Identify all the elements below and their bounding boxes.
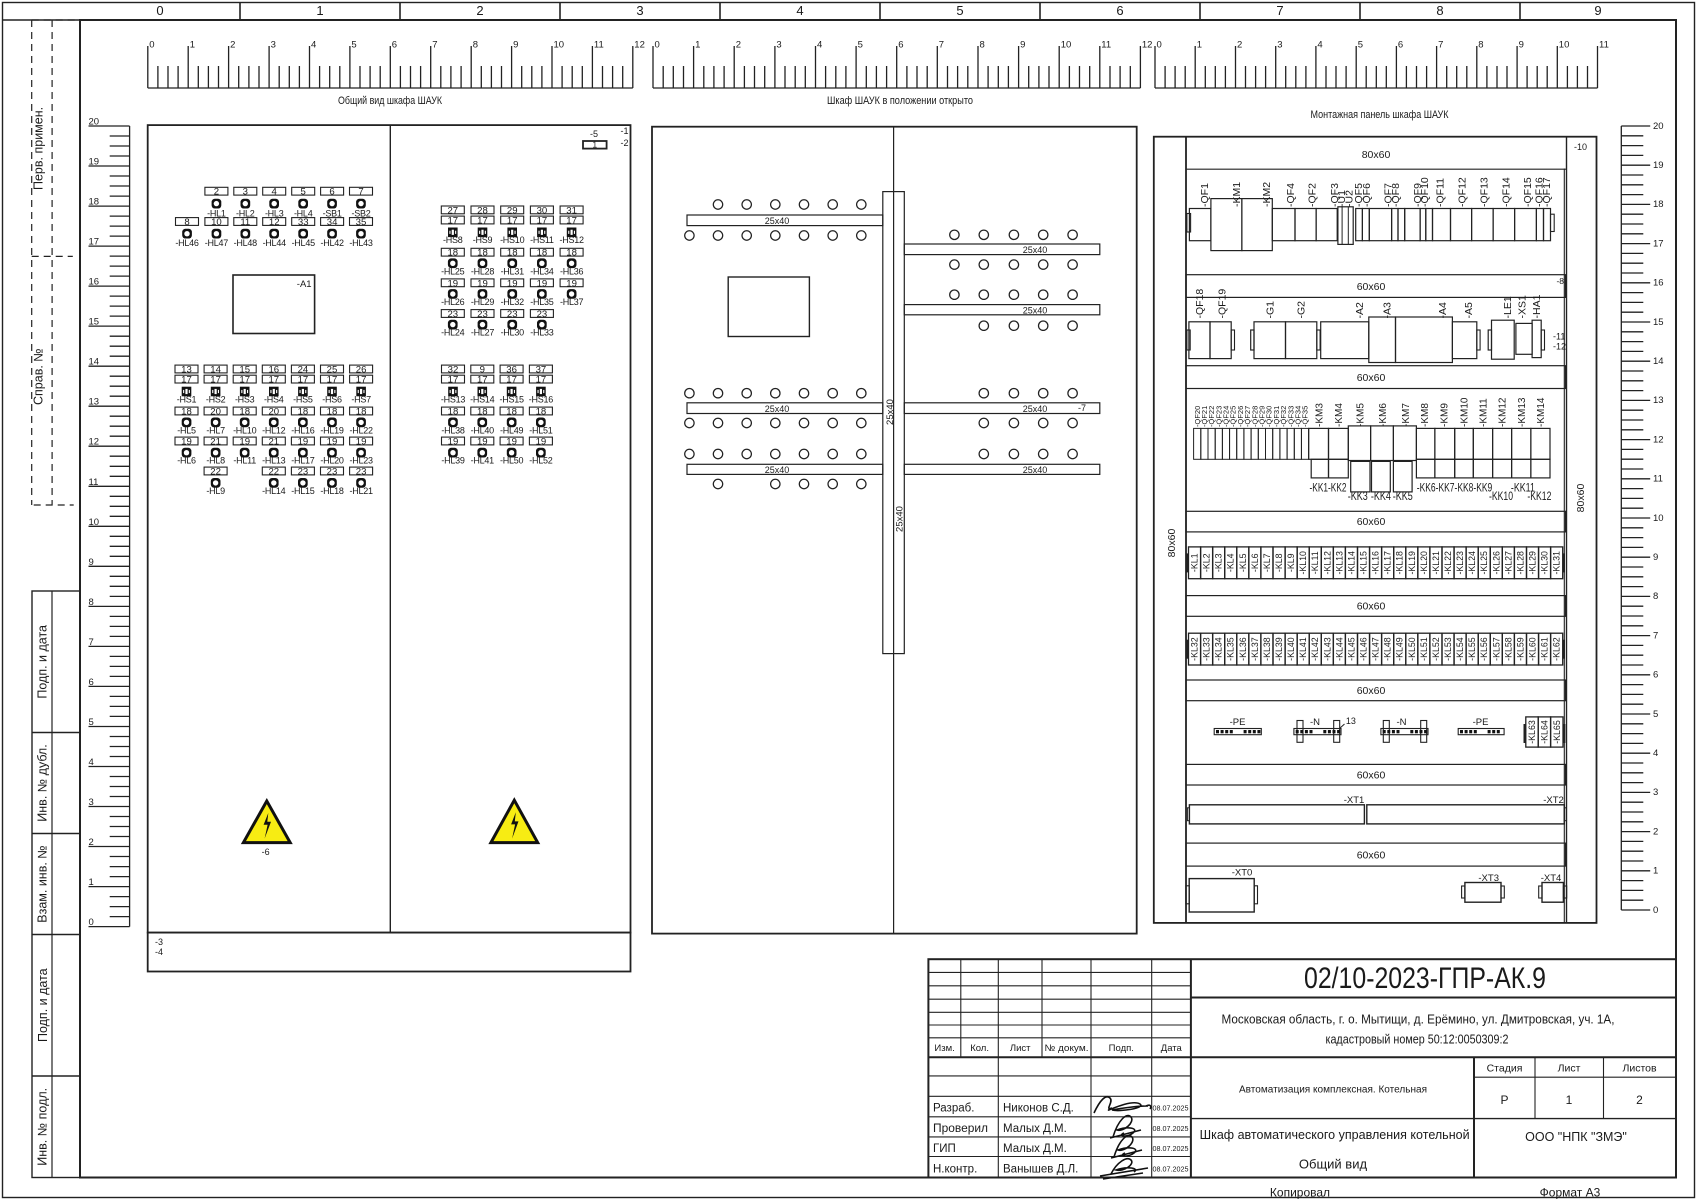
svg-text:Изм.: Изм. <box>934 1043 954 1054</box>
svg-text:-1: -1 <box>620 126 628 136</box>
svg-text:-KL34: -KL34 <box>1214 637 1224 661</box>
svg-text:4: 4 <box>796 3 803 18</box>
svg-text:-KL6: -KL6 <box>1250 553 1260 572</box>
svg-text:Взам. инв. №: Взам. инв. № <box>36 845 50 922</box>
svg-text:ООО "НПК "ЗМЭ": ООО "НПК "ЗМЭ" <box>1525 1130 1627 1144</box>
svg-text:-HS1: -HS1 <box>177 395 197 405</box>
svg-text:-KM9: -KM9 <box>1440 403 1451 427</box>
svg-text:21: 21 <box>268 437 279 448</box>
svg-text:7: 7 <box>1276 3 1283 18</box>
svg-text:-HL32: -HL32 <box>501 297 525 307</box>
svg-text:20: 20 <box>210 407 221 418</box>
svg-text:-QF19: -QF19 <box>1216 289 1228 319</box>
svg-text:-HL44: -HL44 <box>263 238 287 248</box>
svg-text:6: 6 <box>329 187 334 198</box>
svg-text:Лист: Лист <box>1010 1043 1031 1054</box>
svg-text:18: 18 <box>181 407 192 418</box>
svg-text:19: 19 <box>537 278 548 289</box>
svg-text:-KL8: -KL8 <box>1274 553 1284 572</box>
svg-text:-HL30: -HL30 <box>501 328 525 338</box>
svg-text:16: 16 <box>1653 278 1664 289</box>
svg-text:11: 11 <box>1653 474 1663 485</box>
svg-text:-KL62: -KL62 <box>1552 637 1562 661</box>
svg-text:-HS2: -HS2 <box>206 395 226 405</box>
svg-text:-HS16: -HS16 <box>529 395 554 405</box>
svg-text:19: 19 <box>298 437 309 448</box>
svg-text:0: 0 <box>149 40 154 51</box>
svg-text:Кол.: Кол. <box>970 1043 989 1054</box>
svg-text:Стадия: Стадия <box>1487 1063 1523 1075</box>
svg-text:6: 6 <box>1398 40 1403 51</box>
svg-text:-KL28: -KL28 <box>1515 551 1525 575</box>
svg-text:-HL34: -HL34 <box>530 266 554 276</box>
svg-text:-KL3: -KL3 <box>1214 553 1224 572</box>
svg-text:-KL18: -KL18 <box>1395 551 1405 575</box>
svg-text:-KL20: -KL20 <box>1419 551 1429 575</box>
svg-text:-KL19: -KL19 <box>1407 551 1417 575</box>
svg-text:17: 17 <box>181 375 192 386</box>
svg-text:60x60: 60x60 <box>1357 372 1386 384</box>
svg-text:20: 20 <box>268 407 279 418</box>
svg-text:-KL46: -KL46 <box>1359 637 1369 661</box>
svg-text:8: 8 <box>980 40 985 51</box>
svg-text:18: 18 <box>506 407 517 418</box>
svg-text:Подп.: Подп. <box>1109 1043 1134 1054</box>
svg-text:-A3: -A3 <box>1382 302 1394 319</box>
svg-text:7: 7 <box>1653 630 1658 641</box>
svg-text:-QF12: -QF12 <box>1456 177 1468 207</box>
svg-text:-KL57: -KL57 <box>1491 637 1501 661</box>
svg-text:-HL22: -HL22 <box>349 426 373 436</box>
svg-text:-QF35: -QF35 <box>1301 406 1310 427</box>
svg-text:-XS1: -XS1 <box>1517 295 1529 319</box>
svg-text:-KL13: -KL13 <box>1334 551 1344 575</box>
svg-text:23: 23 <box>507 309 518 320</box>
svg-text:12: 12 <box>1653 434 1664 445</box>
svg-text:4: 4 <box>1653 748 1658 759</box>
svg-text:-KM4: -KM4 <box>1334 403 1345 427</box>
svg-text:19: 19 <box>356 437 367 448</box>
svg-text:-HS6: -HS6 <box>322 395 342 405</box>
svg-text:3: 3 <box>776 40 781 51</box>
svg-text:4: 4 <box>311 40 316 51</box>
svg-text:-KL49: -KL49 <box>1395 637 1405 661</box>
svg-text:-KL7: -KL7 <box>1262 553 1272 572</box>
svg-text:6: 6 <box>1116 3 1123 18</box>
svg-text:1: 1 <box>1566 1093 1573 1107</box>
svg-text:23: 23 <box>537 309 548 320</box>
svg-text:19: 19 <box>327 437 338 448</box>
svg-text:-KL33: -KL33 <box>1202 637 1212 661</box>
svg-text:ГИП: ГИП <box>933 1143 956 1155</box>
svg-text:19: 19 <box>1653 160 1664 171</box>
svg-text:11: 11 <box>240 217 250 228</box>
svg-text:14: 14 <box>1653 356 1664 367</box>
svg-text:-KL1: -KL1 <box>1190 553 1200 572</box>
svg-text:-KK12: -KK12 <box>1527 491 1551 503</box>
svg-text:19: 19 <box>447 278 458 289</box>
svg-text:-HL27: -HL27 <box>471 328 495 338</box>
svg-text:17: 17 <box>1653 238 1664 249</box>
svg-text:5: 5 <box>1358 40 1363 51</box>
svg-text:-KK10: -KK10 <box>1489 491 1513 503</box>
svg-text:-KL21: -KL21 <box>1431 551 1441 575</box>
svg-text:2: 2 <box>736 40 741 51</box>
svg-text:-KM12: -KM12 <box>1498 397 1509 427</box>
svg-text:-KL29: -KL29 <box>1528 551 1538 575</box>
svg-text:10: 10 <box>1559 40 1570 51</box>
svg-text:-HL39: -HL39 <box>441 455 465 465</box>
svg-text:Никонов С.Д.: Никонов С.Д. <box>1003 1103 1074 1115</box>
svg-text:-PE: -PE <box>1473 717 1489 728</box>
svg-text:11: 11 <box>1599 40 1609 51</box>
svg-text:-KM7: -KM7 <box>1401 403 1412 427</box>
svg-text:-5: -5 <box>590 129 598 139</box>
svg-text:2: 2 <box>230 40 235 51</box>
svg-text:-HL21: -HL21 <box>349 486 373 496</box>
svg-text:25x40: 25x40 <box>765 404 790 414</box>
svg-text:Формат А3: Формат А3 <box>1540 1186 1601 1200</box>
svg-text:Дата: Дата <box>1161 1043 1183 1054</box>
svg-text:-HL11: -HL11 <box>233 455 256 465</box>
svg-text:33: 33 <box>298 217 309 228</box>
svg-text:Инв. № подл.: Инв. № подл. <box>36 1088 50 1166</box>
svg-text:19: 19 <box>477 278 488 289</box>
svg-text:2: 2 <box>214 187 219 198</box>
svg-text:-A4: -A4 <box>1437 302 1449 319</box>
svg-text:3: 3 <box>636 3 643 18</box>
svg-text:Справ. №: Справ. № <box>32 348 46 405</box>
svg-text:20: 20 <box>1653 121 1664 132</box>
svg-text:19: 19 <box>181 437 192 448</box>
svg-text:-KL26: -KL26 <box>1491 551 1501 575</box>
svg-text:10: 10 <box>1653 513 1664 524</box>
svg-text:17: 17 <box>447 216 458 227</box>
svg-text:-HL42: -HL42 <box>320 238 344 248</box>
svg-text:-QF10: -QF10 <box>1419 177 1431 207</box>
svg-text:Малых Д.М.: Малых Д.М. <box>1003 1143 1067 1155</box>
svg-text:-KL2: -KL2 <box>1202 553 1212 572</box>
svg-text:12: 12 <box>269 217 280 228</box>
svg-text:-G2: -G2 <box>1295 301 1307 319</box>
svg-text:-KL56: -KL56 <box>1479 637 1489 661</box>
svg-text:-KL61: -KL61 <box>1540 637 1550 661</box>
svg-text:-KL27: -KL27 <box>1503 551 1513 575</box>
svg-text:23: 23 <box>298 467 309 478</box>
svg-text:-KL45: -KL45 <box>1346 637 1356 661</box>
svg-text:-HL20: -HL20 <box>320 455 344 465</box>
svg-text:Общий вид шкафа ШАУК: Общий вид шкафа ШАУК <box>338 95 442 107</box>
svg-text:-HL33: -HL33 <box>530 328 554 338</box>
svg-text:17: 17 <box>210 375 221 386</box>
svg-text:-KL14: -KL14 <box>1346 551 1356 575</box>
svg-text:21: 21 <box>210 437 221 448</box>
svg-text:25x40: 25x40 <box>1023 305 1048 315</box>
svg-text:-KL25: -KL25 <box>1479 551 1489 575</box>
svg-text:23: 23 <box>447 309 458 320</box>
svg-text:7: 7 <box>1438 40 1443 51</box>
svg-text:-HA1: -HA1 <box>1531 294 1543 318</box>
svg-text:Подп. и дата: Подп. и дата <box>36 625 50 699</box>
svg-text:-QF8: -QF8 <box>1390 183 1402 207</box>
svg-text:17: 17 <box>507 216 518 227</box>
svg-text:18: 18 <box>536 407 547 418</box>
svg-text:-HL37: -HL37 <box>560 297 584 307</box>
svg-text:-HL43: -HL43 <box>349 238 373 248</box>
svg-text:25x40: 25x40 <box>885 399 896 425</box>
svg-text:-KK4: -KK4 <box>1371 491 1391 503</box>
svg-text:-XT3: -XT3 <box>1478 873 1499 884</box>
svg-text:-KL36: -KL36 <box>1238 637 1248 661</box>
svg-text:Проверил: Проверил <box>933 1123 988 1135</box>
svg-text:2: 2 <box>1237 40 1242 51</box>
svg-text:Шкаф автоматического управлени: Шкаф автоматического управления котельно… <box>1200 1127 1470 1142</box>
svg-text:-KM11: -KM11 <box>1478 398 1489 427</box>
svg-text:Лист: Лист <box>1558 1063 1581 1075</box>
svg-text:-3: -3 <box>155 937 163 947</box>
svg-text:-XT1: -XT1 <box>1344 795 1365 806</box>
svg-text:10: 10 <box>1061 40 1072 51</box>
svg-text:-KM6: -KM6 <box>1378 403 1389 427</box>
svg-text:-KL60: -KL60 <box>1528 637 1538 661</box>
svg-text:-N: -N <box>1396 717 1406 728</box>
svg-text:-HL15: -HL15 <box>291 486 315 496</box>
svg-text:-KL47: -KL47 <box>1371 637 1381 661</box>
svg-text:19: 19 <box>239 437 250 448</box>
svg-text:-KL32: -KL32 <box>1190 637 1200 661</box>
svg-text:-11: -11 <box>1553 332 1565 342</box>
svg-text:4: 4 <box>272 187 278 198</box>
svg-text:-KL17: -KL17 <box>1383 551 1393 575</box>
svg-text:-HL29: -HL29 <box>471 297 495 307</box>
svg-text:-HL49: -HL49 <box>500 426 524 436</box>
svg-text:-QF2: -QF2 <box>1307 183 1319 207</box>
svg-text:13: 13 <box>1653 395 1664 406</box>
svg-text:-KL11: -KL11 <box>1310 551 1320 574</box>
svg-text:13: 13 <box>1346 716 1356 726</box>
svg-text:17: 17 <box>239 375 250 386</box>
svg-text:-KL37: -KL37 <box>1250 637 1260 661</box>
svg-text:-10: -10 <box>1574 142 1587 152</box>
svg-text:-KL35: -KL35 <box>1226 637 1236 661</box>
svg-text:22: 22 <box>210 467 221 478</box>
svg-text:8: 8 <box>1653 591 1658 602</box>
svg-text:-8: -8 <box>1556 276 1564 286</box>
svg-text:Малых Д.М.: Малых Д.М. <box>1003 1123 1067 1135</box>
svg-text:60x60: 60x60 <box>1357 770 1386 782</box>
svg-text:-A2: -A2 <box>1354 302 1366 319</box>
svg-text:-KM8: -KM8 <box>1420 403 1431 427</box>
svg-text:-HL12: -HL12 <box>262 426 286 436</box>
svg-text:5: 5 <box>858 40 863 51</box>
svg-text:-HL47: -HL47 <box>205 238 229 248</box>
svg-text:-KL9: -KL9 <box>1286 553 1296 572</box>
svg-text:1: 1 <box>1653 866 1658 877</box>
svg-text:8: 8 <box>1478 40 1483 51</box>
svg-text:34: 34 <box>327 217 338 228</box>
svg-text:-KL65: -KL65 <box>1552 720 1562 744</box>
svg-text:5: 5 <box>1653 709 1658 720</box>
svg-text:-HL46: -HL46 <box>175 238 199 248</box>
svg-text:-KL53: -KL53 <box>1443 637 1453 661</box>
svg-text:-KL52: -KL52 <box>1431 637 1441 661</box>
svg-text:08.07.2025: 08.07.2025 <box>1153 1144 1189 1153</box>
svg-text:25x40: 25x40 <box>765 216 790 226</box>
svg-text:-KK5: -KK5 <box>1393 491 1413 503</box>
svg-text:-A1: -A1 <box>297 279 312 290</box>
svg-text:18: 18 <box>477 248 488 259</box>
svg-text:-KL31: -KL31 <box>1552 551 1562 575</box>
svg-text:17: 17 <box>448 375 459 386</box>
svg-text:-QF17: -QF17 <box>1541 177 1553 207</box>
svg-text:Копировал: Копировал <box>1270 1186 1330 1200</box>
svg-text:17: 17 <box>506 375 517 386</box>
svg-text:-KM10: -KM10 <box>1459 397 1470 427</box>
svg-text:19: 19 <box>566 278 577 289</box>
svg-text:-KM3: -KM3 <box>1314 403 1325 427</box>
svg-text:-XT4: -XT4 <box>1541 873 1562 884</box>
svg-text:17: 17 <box>536 375 547 386</box>
svg-text:-KL42: -KL42 <box>1310 637 1320 661</box>
svg-text:1: 1 <box>1197 40 1202 51</box>
svg-text:-HL16: -HL16 <box>291 426 315 436</box>
svg-text:2: 2 <box>476 3 483 18</box>
svg-text:Р: Р <box>1500 1093 1508 1107</box>
svg-text:-XT2: -XT2 <box>1543 795 1564 806</box>
svg-text:Монтажная панель шкафа ШАУК: Монтажная панель шкафа ШАУК <box>1311 109 1449 121</box>
svg-text:-KL54: -KL54 <box>1455 637 1465 661</box>
svg-text:17: 17 <box>477 375 488 386</box>
svg-text:17: 17 <box>566 216 577 227</box>
svg-text:-KL48: -KL48 <box>1383 637 1393 661</box>
svg-text:23: 23 <box>477 309 488 320</box>
svg-text:25x40: 25x40 <box>765 465 790 475</box>
svg-text:6: 6 <box>898 40 903 51</box>
svg-text:-N: -N <box>1310 717 1320 728</box>
svg-text:17: 17 <box>537 216 548 227</box>
svg-text:25x40: 25x40 <box>1023 245 1048 255</box>
svg-text:-HL23: -HL23 <box>349 455 373 465</box>
svg-text:02/10-2023-ГПР-АК.9: 02/10-2023-ГПР-АК.9 <box>1304 962 1546 995</box>
svg-text:-HS8: -HS8 <box>443 235 463 245</box>
svg-text:-QF13: -QF13 <box>1479 177 1491 207</box>
svg-text:25x40: 25x40 <box>1023 404 1048 414</box>
svg-text:1: 1 <box>316 3 323 18</box>
svg-text:80x60: 80x60 <box>1166 529 1178 558</box>
svg-text:-HL51: -HL51 <box>529 426 553 436</box>
svg-text:11: 11 <box>1101 40 1111 51</box>
svg-text:19: 19 <box>507 278 518 289</box>
svg-text:-HL25: -HL25 <box>441 266 465 276</box>
svg-text:-KM5: -KM5 <box>1355 403 1366 427</box>
svg-text:18: 18 <box>327 407 338 418</box>
svg-text:-KK1-KK2: -KK1-KK2 <box>1310 482 1347 494</box>
svg-text:08.07.2025: 08.07.2025 <box>1153 1104 1189 1113</box>
svg-text:-HL41: -HL41 <box>471 455 495 465</box>
svg-text:10: 10 <box>554 40 565 51</box>
svg-text:№ докум.: № докум. <box>1045 1043 1089 1054</box>
svg-text:-QF11: -QF11 <box>1435 178 1447 207</box>
svg-text:4: 4 <box>817 40 822 51</box>
svg-text:-HL38: -HL38 <box>441 426 465 436</box>
svg-text:-KL58: -KL58 <box>1503 637 1513 661</box>
svg-text:-QF4: -QF4 <box>1285 183 1297 207</box>
svg-text:19: 19 <box>477 437 488 448</box>
svg-text:-HL50: -HL50 <box>500 455 524 465</box>
svg-text:-KL51: -KL51 <box>1419 637 1429 661</box>
svg-text:80x60: 80x60 <box>1362 149 1391 161</box>
svg-text:35: 35 <box>356 217 367 228</box>
svg-text:18: 18 <box>356 407 367 418</box>
svg-text:80x60: 80x60 <box>1575 484 1587 513</box>
svg-text:-KL4: -KL4 <box>1226 553 1236 572</box>
svg-text:-KL44: -KL44 <box>1334 637 1344 661</box>
svg-text:3: 3 <box>1277 40 1282 51</box>
svg-text:-HL14: -HL14 <box>262 486 286 496</box>
svg-text:-KL41: -KL41 <box>1298 637 1308 661</box>
svg-text:-HL18: -HL18 <box>320 486 344 496</box>
svg-text:-KL55: -KL55 <box>1467 637 1477 661</box>
svg-text:2: 2 <box>1653 826 1658 837</box>
svg-text:18: 18 <box>566 248 577 259</box>
svg-text:5: 5 <box>956 3 963 18</box>
svg-text:-KL22: -KL22 <box>1443 551 1453 575</box>
svg-text:-QF15: -QF15 <box>1522 177 1534 207</box>
svg-text:-4: -4 <box>155 947 163 957</box>
svg-text:12: 12 <box>1142 40 1153 51</box>
svg-text:Шкаф ШАУК в положении открыто: Шкаф ШАУК в положении открыто <box>827 95 973 107</box>
svg-text:5: 5 <box>351 40 356 51</box>
svg-text:18: 18 <box>507 248 518 259</box>
svg-text:9: 9 <box>1020 40 1025 51</box>
svg-text:3: 3 <box>271 40 276 51</box>
svg-text:-KL5: -KL5 <box>1238 553 1248 572</box>
svg-text:-QF6: -QF6 <box>1361 183 1373 207</box>
svg-text:17: 17 <box>327 375 338 386</box>
svg-text:Московская область, г. о. Мыти: Московская область, г. о. Мытищи, д. Ерё… <box>1222 1013 1615 1027</box>
svg-text:-KM14: -KM14 <box>1536 397 1547 427</box>
svg-text:18: 18 <box>477 407 488 418</box>
svg-text:9: 9 <box>513 40 518 51</box>
svg-text:25x40: 25x40 <box>1023 465 1048 475</box>
svg-text:-KL24: -KL24 <box>1467 551 1477 575</box>
svg-text:0: 0 <box>156 3 163 18</box>
svg-text:Листов: Листов <box>1622 1063 1657 1075</box>
svg-text:-HL5: -HL5 <box>177 426 196 436</box>
svg-text:-XT0: -XT0 <box>1232 868 1253 879</box>
svg-text:-KL40: -KL40 <box>1286 637 1296 661</box>
svg-text:-HL45: -HL45 <box>292 238 316 248</box>
svg-text:-KL23: -KL23 <box>1455 551 1465 575</box>
svg-text:-KK6-KK7-KK8-KK9: -KK6-KK7-KK8-KK9 <box>1417 482 1493 494</box>
svg-text:-HS11: -HS11 <box>530 235 554 245</box>
svg-text:Инв. № дубл.: Инв. № дубл. <box>36 744 50 821</box>
svg-text:-KL39: -KL39 <box>1274 637 1284 661</box>
svg-text:кадастровый номер 50:12:005030: кадастровый номер 50:12:0050309:2 <box>1326 1033 1509 1047</box>
svg-text:1: 1 <box>593 141 598 150</box>
svg-text:-KL43: -KL43 <box>1322 637 1332 661</box>
svg-text:-HL35: -HL35 <box>530 297 554 307</box>
svg-text:18: 18 <box>447 248 458 259</box>
svg-text:-HS3: -HS3 <box>235 395 255 405</box>
svg-text:3: 3 <box>1653 787 1658 798</box>
svg-text:9: 9 <box>1653 552 1658 563</box>
svg-text:-KK3: -KK3 <box>1348 491 1368 503</box>
svg-text:11: 11 <box>594 40 604 51</box>
svg-text:-HL9: -HL9 <box>206 486 225 496</box>
svg-text:Н.контр.: Н.контр. <box>933 1164 977 1176</box>
svg-text:4: 4 <box>1317 40 1322 51</box>
